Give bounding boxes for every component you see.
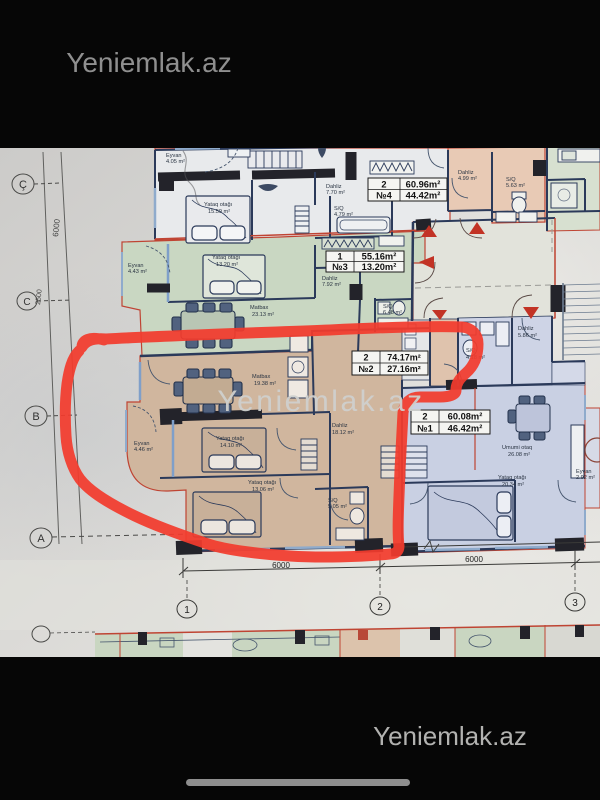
svg-text:Umumi otaq: Umumi otaq: [502, 445, 532, 451]
svg-text:4.05 m²: 4.05 m²: [166, 159, 185, 165]
svg-text:4.99 m²: 4.99 m²: [458, 176, 477, 182]
svg-text:5.86 m²: 5.86 m²: [518, 333, 537, 339]
svg-text:20.34 m²: 20.34 m²: [502, 482, 524, 488]
svg-text:Yeniemlak.az: Yeniemlak.az: [66, 47, 232, 78]
svg-text:№3: №3: [332, 262, 348, 272]
svg-text:7.70 m²: 7.70 m²: [326, 190, 345, 196]
svg-text:74.17m²: 74.17m²: [387, 353, 421, 363]
svg-text:№4: №4: [376, 191, 392, 201]
svg-text:3: 3: [572, 598, 578, 609]
svg-text:№2: №2: [358, 364, 373, 374]
svg-text:Matbax: Matbax: [252, 374, 271, 380]
svg-text:1: 1: [184, 605, 190, 616]
svg-text:Yataq otağı: Yataq otağı: [212, 255, 241, 261]
svg-text:15.59 m²: 15.59 m²: [208, 209, 230, 215]
svg-text:Yataq otağı: Yataq otağı: [248, 480, 277, 486]
svg-text:4.46 m²: 4.46 m²: [134, 447, 153, 453]
svg-text:44.42m²: 44.42m²: [406, 191, 441, 201]
svg-text:Yataq otağı: Yataq otağı: [204, 202, 233, 208]
svg-text:26.08 m²: 26.08 m²: [508, 452, 530, 458]
svg-text:Yataq otağı: Yataq otağı: [216, 436, 245, 442]
svg-text:B: B: [32, 411, 39, 423]
svg-text:18.12 m²: 18.12 m²: [332, 430, 354, 436]
svg-text:2.92 m²: 2.92 m²: [576, 475, 595, 481]
svg-text:4.43 m²: 4.43 m²: [128, 269, 147, 275]
svg-text:Yeniemlak.az: Yeniemlak.az: [217, 385, 424, 418]
svg-text:14.10 m²: 14.10 m²: [220, 443, 242, 449]
svg-text:2: 2: [381, 180, 386, 190]
svg-text:Dahliz: Dahliz: [518, 326, 534, 332]
svg-text:13.06 m²: 13.06 m²: [252, 487, 274, 493]
svg-text:A: A: [37, 533, 45, 545]
svg-text:4.79 m²: 4.79 m²: [334, 212, 353, 218]
svg-text:Yataq otağı: Yataq otağı: [498, 475, 527, 481]
svg-text:Dahliz: Dahliz: [332, 423, 348, 429]
svg-text:2: 2: [377, 602, 383, 613]
svg-text:23.13 m²: 23.13 m²: [252, 312, 274, 318]
svg-text:27.16m²: 27.16m²: [387, 364, 421, 374]
svg-text:Matbax: Matbax: [250, 305, 269, 311]
svg-text:№1: №1: [417, 424, 433, 434]
svg-text:C: C: [23, 297, 30, 308]
svg-text:5.63 m²: 5.63 m²: [506, 183, 525, 189]
svg-text:1: 1: [337, 252, 342, 262]
svg-text:60.08m²: 60.08m²: [448, 412, 483, 422]
svg-text:Ç: Ç: [19, 179, 27, 191]
svg-text:5.05 m²: 5.05 m²: [328, 504, 347, 510]
svg-text:13.20m²: 13.20m²: [362, 262, 397, 272]
svg-text:Yeniemlak.az: Yeniemlak.az: [373, 721, 527, 751]
svg-text:6000: 6000: [465, 555, 483, 564]
svg-text:13.20 m²: 13.20 m²: [216, 262, 238, 268]
svg-text:46.42m²: 46.42m²: [448, 424, 483, 434]
svg-text:7.92 m²: 7.92 m²: [322, 282, 341, 288]
svg-text:55.16m²: 55.16m²: [362, 252, 397, 262]
svg-text:6000: 6000: [51, 218, 62, 237]
svg-text:2: 2: [363, 353, 368, 363]
svg-text:60.96m²: 60.96m²: [406, 180, 441, 190]
svg-text:6000: 6000: [272, 561, 290, 570]
svg-text:6.48 m²: 6.48 m²: [383, 310, 402, 316]
